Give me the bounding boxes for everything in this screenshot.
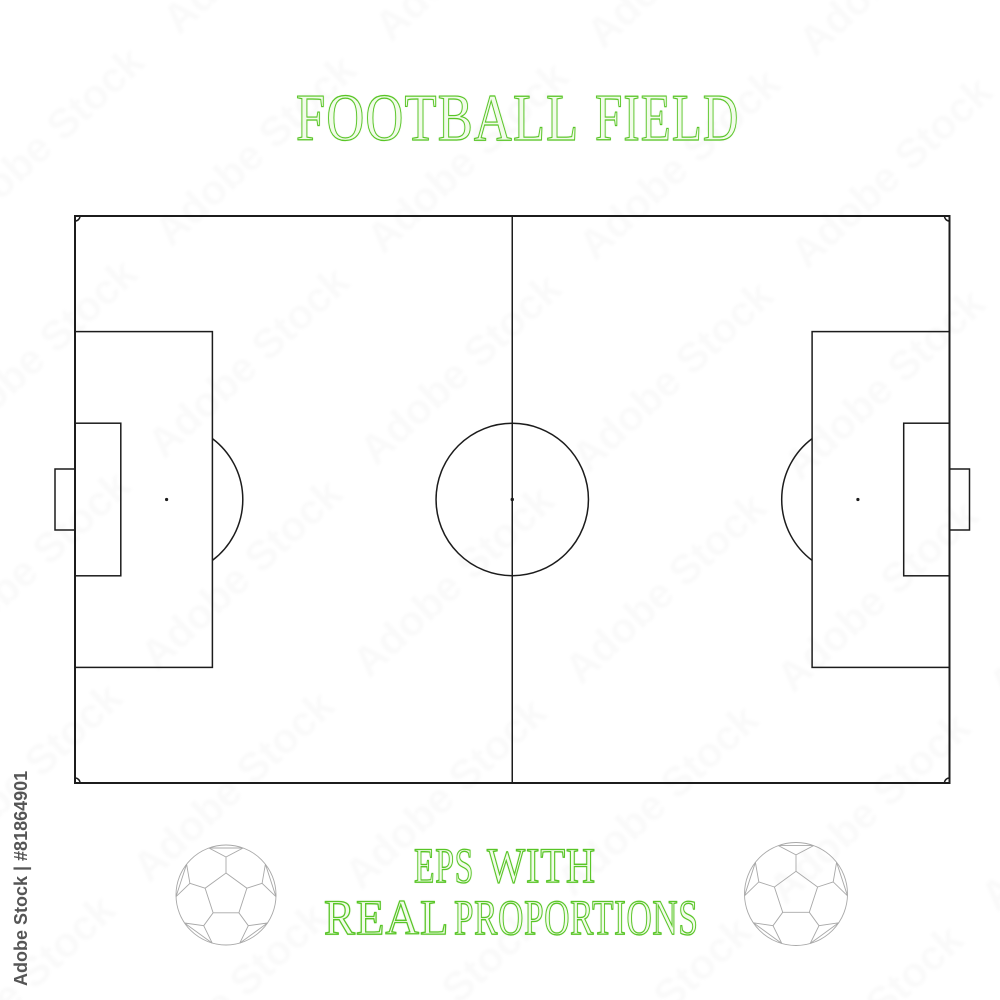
svg-text:Adobe Stock: Adobe Stock (789, 0, 1000, 65)
svg-text:Adobe Stock: Adobe Stock (577, 0, 797, 57)
svg-text:Adobe Stock: Adobe Stock (781, 67, 1000, 277)
svg-text:Adobe Stock: Adobe Stock (116, 893, 336, 1000)
svg-text:Adobe Stock: Adobe Stock (0, 461, 139, 671)
svg-text:Adobe Stock: Adobe Stock (752, 915, 972, 1000)
svg-text:Adobe Stock: Adobe Stock (350, 264, 570, 474)
svg-text:Adobe Stock: Adobe Stock (153, 0, 373, 43)
svg-text:Adobe Stock: Adobe Stock (971, 710, 1000, 920)
svg-text:Adobe Stock: Adobe Stock (555, 483, 775, 693)
svg-text:Adobe Stock: Adobe Stock (343, 476, 563, 686)
svg-text:Adobe Stock: Adobe Stock (0, 249, 146, 459)
svg-text:Adobe Stock: Adobe Stock (0, 0, 161, 35)
svg-text:Adobe Stock: Adobe Stock (767, 491, 987, 701)
svg-text:Adobe Stock: Adobe Stock (774, 279, 994, 489)
svg-text:Adobe Stock: Adobe Stock (123, 681, 343, 891)
svg-text:Adobe Stock: Adobe Stock (131, 469, 351, 679)
svg-text:Adobe Stock: Adobe Stock (138, 257, 358, 467)
svg-text:Adobe Stock: Adobe Stock (562, 271, 782, 481)
svg-text:Adobe Stock: Adobe Stock (759, 703, 979, 913)
svg-text:Adobe Stock: Adobe Stock (365, 0, 585, 50)
